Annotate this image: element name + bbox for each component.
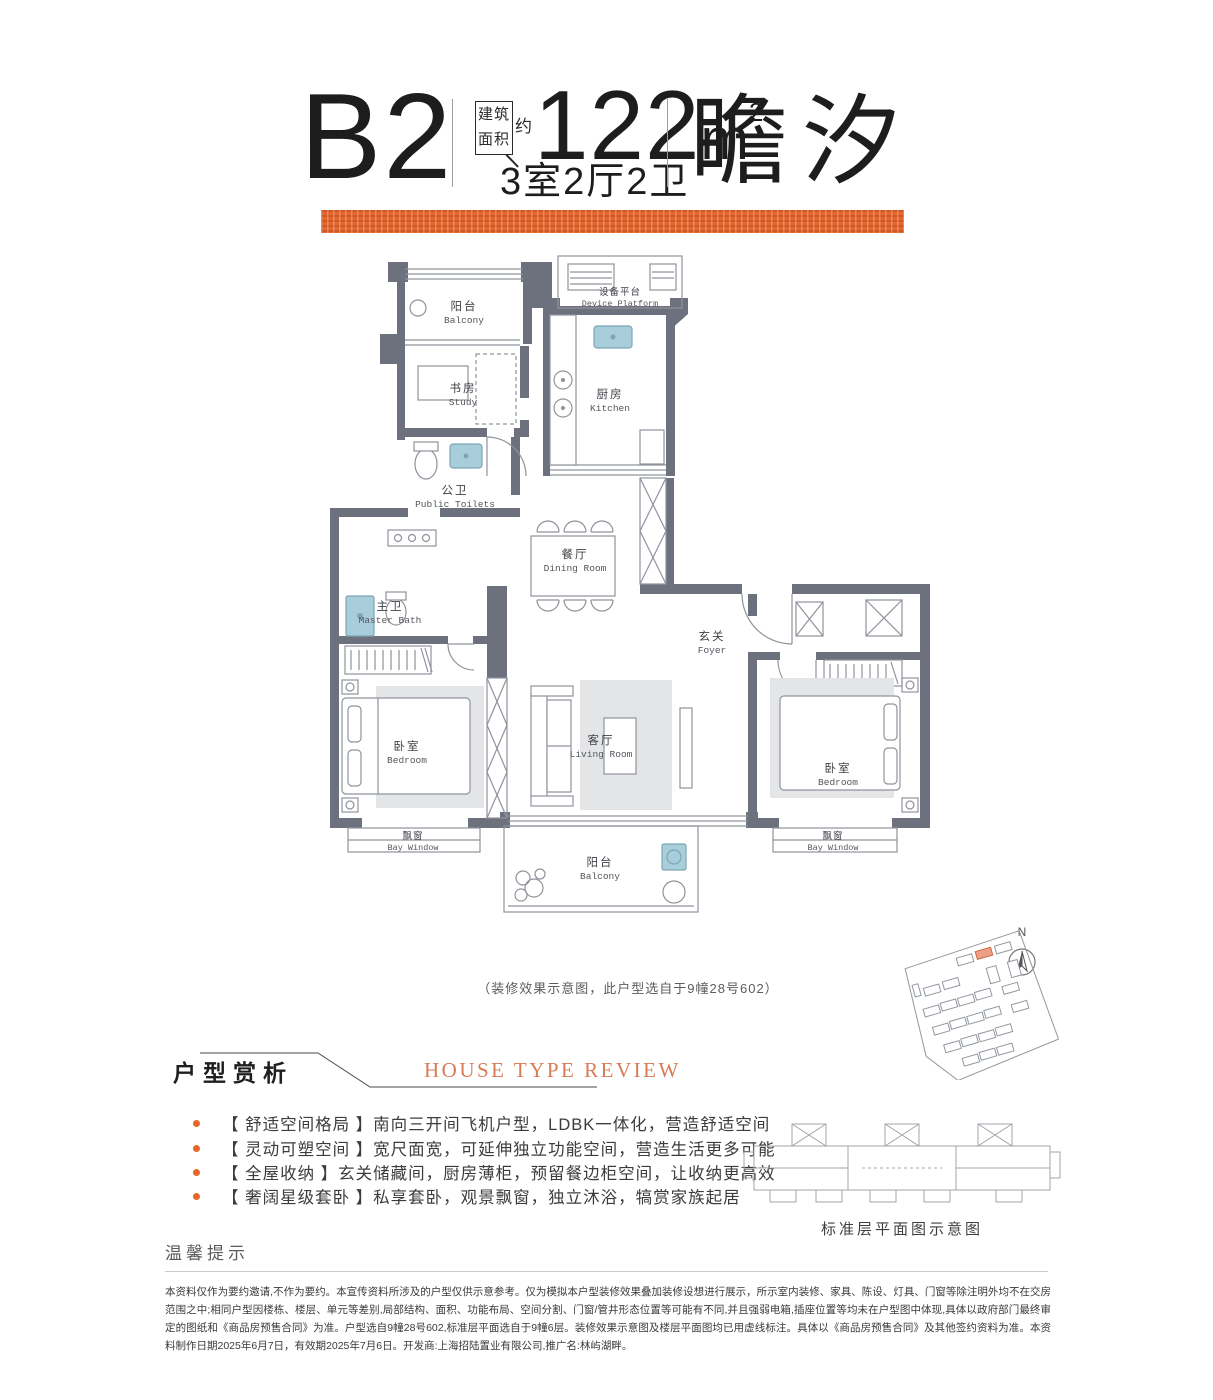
- room-label-bay-window-left: 飘窗 Bay Window: [387, 828, 438, 853]
- layout-label: 3室2厅2卫: [500, 150, 650, 205]
- area-label-line2: 面积: [476, 127, 512, 152]
- room-label-master-bath: 主卫 Master Bath: [359, 598, 422, 626]
- disclaimer-text: 本资料仅作为要约邀请,不作为要约。本宣传资料所涉及的户型仅供示意参考。仅为模拟本…: [165, 1283, 1051, 1356]
- header-divider-left: [452, 99, 453, 187]
- room-label-device-platform: 设备平台 Device Platform: [582, 284, 659, 309]
- site-plan: [878, 920, 1078, 1080]
- header-divider-right: [667, 99, 668, 187]
- flyer-page: { "header": { "unit_code": "B2", "area_b…: [0, 0, 1213, 1400]
- standard-floor-caption: 标准层平面图示意图: [742, 1218, 1062, 1239]
- approx-label: 约: [515, 112, 533, 137]
- review-title-en: HOUSE TYPE REVIEW: [424, 1058, 681, 1083]
- notice-title: 温馨提示: [165, 1239, 249, 1264]
- room-label-bedroom-right: 卧室 Bedroom: [818, 760, 858, 788]
- unit-code: B2: [300, 72, 453, 200]
- room-label-bedroom-left: 卧室 Bedroom: [387, 738, 427, 766]
- room-label-living: 客厅 Living Room: [570, 732, 633, 760]
- room-label-foyer: 玄关 Foyer: [698, 628, 727, 656]
- floor-plan: 阳台 Balcony 设备平台 Device Platform 书房 Study…: [318, 250, 938, 940]
- bullet-dot-icon: [193, 1169, 200, 1176]
- bullet-dot-icon: [193, 1193, 200, 1200]
- bullet-dot-icon: [193, 1120, 200, 1127]
- bullet-dot-icon: [193, 1145, 200, 1152]
- product-name: 瞻汐: [690, 88, 914, 196]
- room-label-kitchen: 厨房 Kitchen: [590, 386, 630, 414]
- standard-floor-diagram: [742, 1112, 1062, 1212]
- room-label-study: 书房 Study: [449, 380, 478, 408]
- room-label-balcony-bottom: 阳台 Balcony: [580, 854, 620, 882]
- room-label-bay-window-right: 飘窗 Bay Window: [807, 828, 858, 853]
- notice-divider: [165, 1271, 1048, 1272]
- area-label-line1: 建筑: [476, 102, 512, 127]
- room-label-public-toilet: 公卫 Public Toilets: [415, 482, 495, 510]
- room-label-dining: 餐厅 Dining Room: [544, 546, 607, 574]
- area-label-box: 建筑 面积: [475, 101, 513, 155]
- plan-caption: （装修效果示意图，此户型选自于9幢28号602）: [318, 978, 938, 997]
- furniture: [342, 315, 918, 903]
- room-label-balcony-top: 阳台 Balcony: [444, 298, 484, 326]
- orange-texture-bar: [321, 210, 904, 233]
